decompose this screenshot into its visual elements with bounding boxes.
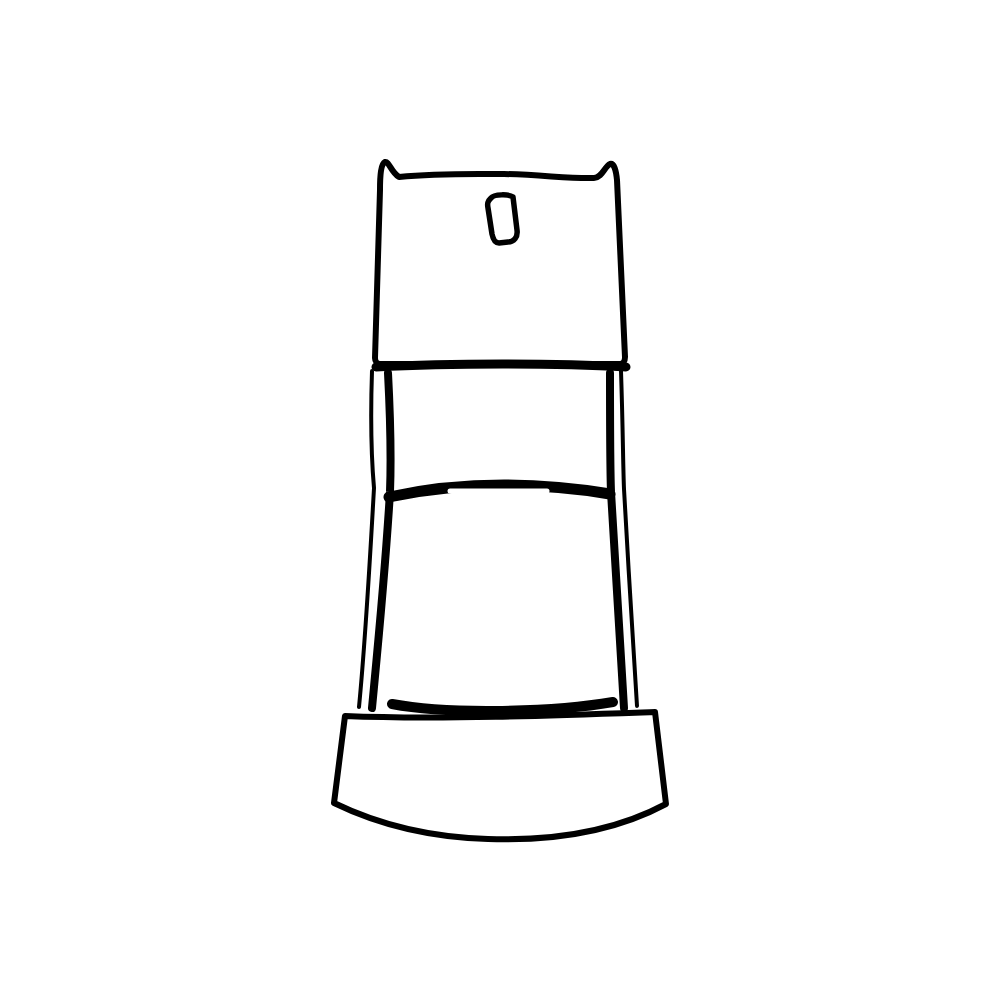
coin-slot bbox=[488, 195, 518, 243]
head-bottom-edge bbox=[376, 364, 626, 367]
column-bottom-edge bbox=[392, 702, 613, 711]
column-left-inner-line bbox=[372, 373, 391, 708]
column-left-outer-line bbox=[359, 371, 374, 707]
machine-line-art bbox=[0, 0, 1000, 1000]
blank-canvas bbox=[0, 0, 1000, 1000]
machine-base bbox=[334, 712, 666, 839]
